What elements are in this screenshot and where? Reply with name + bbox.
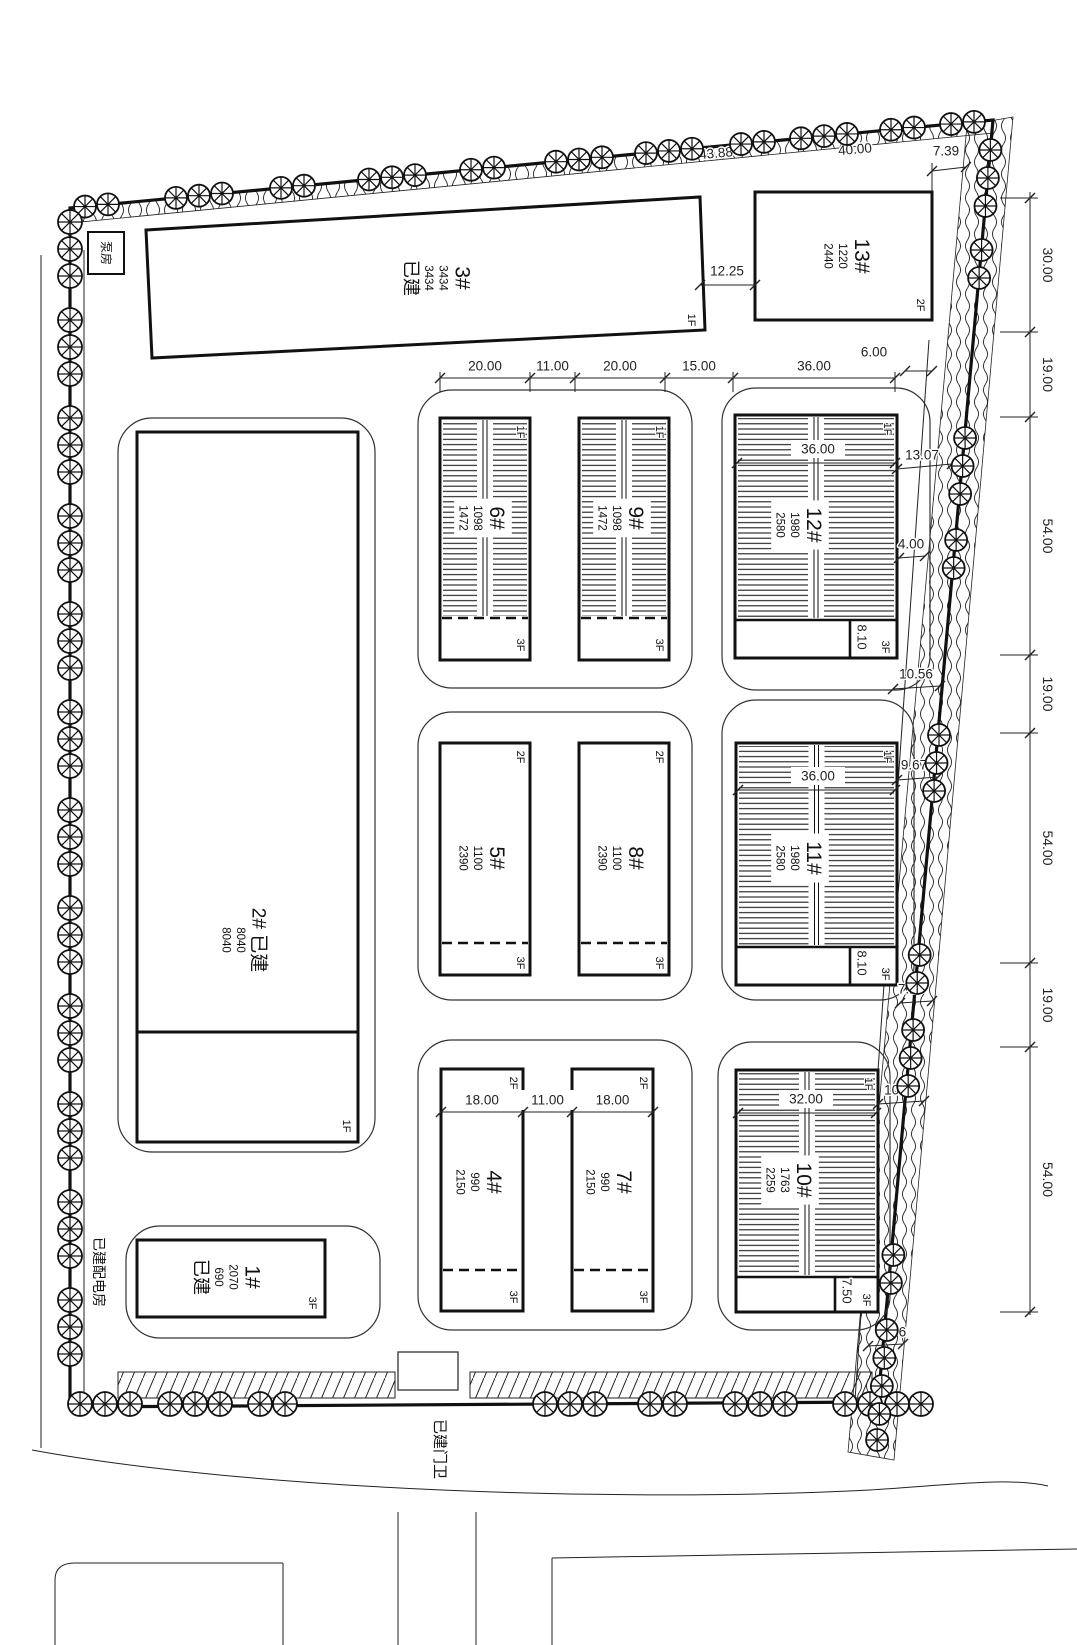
tree-icon — [58, 754, 82, 778]
floor-tag: 1F — [881, 751, 893, 764]
tree-icon — [790, 127, 812, 149]
building-11-text-0: 11# — [802, 841, 825, 875]
tree-icon — [902, 1019, 924, 1041]
building-6-text-2: 1472 — [456, 505, 468, 531]
dim-label: 12.25 — [710, 264, 744, 279]
building-2-text-2: 8040 — [220, 927, 232, 953]
building-9-label: 9#10981472 — [593, 499, 651, 538]
tree-icon — [293, 175, 315, 197]
building-1-text-2: 690 — [212, 1267, 224, 1286]
tree-icon — [68, 1392, 92, 1416]
floor-tag: 1F — [881, 423, 893, 436]
tree-icon — [923, 780, 945, 802]
tree-icon — [58, 1021, 82, 1045]
building-8-label: 8#11002390 — [593, 839, 651, 878]
path — [552, 1549, 1077, 1558]
floor-tag: 1F — [862, 1078, 874, 1091]
tree-icon — [900, 1047, 922, 1069]
tree-icon — [558, 1392, 582, 1416]
gate-house-label: 已建门卫 — [431, 1419, 448, 1479]
dim-label: 7.39 — [933, 144, 959, 159]
building-7-label: 7#9902150 — [581, 1163, 639, 1202]
tree-icon — [882, 1244, 904, 1266]
tree-icon — [58, 798, 82, 822]
gate-house-box — [398, 1352, 458, 1390]
tree-icon — [58, 460, 82, 484]
tree-icon — [58, 852, 82, 876]
floor-tag: 3F — [860, 1294, 872, 1307]
tree-icon — [58, 896, 82, 920]
dim-label: 43.88 — [699, 144, 734, 162]
tree-icon — [58, 362, 82, 386]
tree-icon — [583, 1392, 607, 1416]
dim-label: 11.00 — [536, 359, 569, 374]
floor-tag: 1F — [685, 314, 697, 327]
tree-icon — [880, 1272, 902, 1294]
tree-icon — [58, 994, 82, 1018]
tree-icon — [58, 727, 82, 751]
tree-icon — [836, 123, 858, 145]
building-1-text-3: 已建 — [191, 1259, 211, 1295]
inner-dim-label: 36.00 — [801, 442, 835, 457]
dim-label: 54.00 — [1040, 830, 1056, 865]
tree-icon — [58, 1342, 82, 1366]
path — [32, 1450, 1048, 1495]
tree-icon — [979, 139, 1001, 161]
dim-label: 30.00 — [1040, 247, 1056, 282]
tree-icon — [871, 1375, 893, 1397]
dim-label: 19.00 — [1040, 357, 1056, 392]
building-3-label: 3#34343434已建 — [399, 259, 478, 298]
tree-icon — [897, 1075, 919, 1097]
building-4-text-1: 990 — [468, 1172, 480, 1191]
dim-label: 18.00 — [596, 1093, 630, 1108]
tree-icon — [165, 187, 187, 209]
strip-dim-label: 8.10 — [854, 950, 869, 975]
tree-icon — [813, 125, 835, 147]
tree-icon — [591, 146, 613, 168]
tree-icon — [868, 1403, 890, 1425]
floor-tag: 3F — [637, 1291, 649, 1304]
tree-icon — [58, 1092, 82, 1116]
building-13-text-2: 2440 — [821, 243, 833, 269]
site-plan-drawing: 36.008.1036.008.1032.007.503#34343434已建1… — [0, 0, 1077, 1645]
building-13-text-0: 13# — [850, 238, 873, 273]
building-8-text-0: 8# — [624, 846, 647, 870]
tree-icon — [58, 264, 82, 288]
floor-tag: 3F — [879, 641, 891, 654]
building-8-text-2: 2390 — [595, 845, 607, 871]
tree-icon — [58, 210, 82, 234]
building-6 — [440, 418, 530, 660]
parking-strips — [118, 1352, 872, 1398]
tree-icon — [58, 406, 82, 430]
tree-icon — [273, 1392, 297, 1416]
tree-icon — [963, 111, 985, 133]
building-4-text-0: 4# — [482, 1170, 505, 1194]
tree-icon — [58, 1119, 82, 1143]
tree-icon — [158, 1392, 182, 1416]
tree-icon — [58, 433, 82, 457]
tree-icon — [968, 267, 990, 289]
tree-icon — [183, 1392, 207, 1416]
dim-label: 4.00 — [898, 537, 924, 552]
building-12-label: 12#19802580 — [771, 500, 829, 549]
building-5-text-2: 2390 — [456, 845, 468, 871]
dim-label: 18.00 — [465, 1093, 499, 1108]
power-room-label: 已建配电房 — [91, 1237, 107, 1307]
building-6-text-0: 6# — [485, 506, 508, 530]
building-12-text-1: 1980 — [788, 512, 800, 538]
building-7-text-0: 7# — [612, 1170, 635, 1194]
tree-icon — [58, 335, 82, 359]
floor-tag: 1F — [340, 1120, 352, 1133]
tree-icon — [926, 752, 948, 774]
tree-icon — [358, 169, 380, 191]
building-9 — [579, 418, 669, 660]
tree-icon — [58, 1146, 82, 1170]
tree-icon — [873, 1347, 895, 1369]
tree-icon — [58, 700, 82, 724]
building-3-text-1: 3434 — [437, 265, 449, 291]
tree-icon — [906, 972, 928, 994]
building-13-text-1: 1220 — [836, 243, 848, 269]
floor-tag: 1F — [653, 426, 665, 439]
tree-icon — [977, 167, 999, 189]
dim-label: 54.00 — [1040, 518, 1056, 553]
tree-icon — [730, 133, 752, 155]
floor-tag: 2F — [653, 751, 665, 764]
building-11-text-2: 2580 — [773, 845, 785, 871]
floor-tag: 3F — [306, 1297, 318, 1310]
dim-label: 13.07 — [905, 448, 939, 463]
tree-icon — [58, 923, 82, 947]
tree-icon — [723, 1392, 747, 1416]
dim-label: 9.67 — [901, 758, 927, 773]
tree-icon — [58, 1315, 82, 1339]
tree-icon — [658, 140, 680, 162]
tree-icon — [58, 602, 82, 626]
tree-icon — [952, 455, 974, 477]
tree-icon — [58, 531, 82, 555]
dim-label: 15.00 — [682, 359, 716, 374]
building-9-text-1: 1098 — [610, 505, 622, 531]
building-10-text-0: 10# — [792, 1162, 815, 1197]
building-2-text-1: 8040 — [234, 927, 246, 953]
tree-icon — [188, 185, 210, 207]
building-1-text-0: 1# — [241, 1265, 264, 1289]
tree-icon — [483, 157, 505, 179]
tree-icon — [58, 1190, 82, 1214]
tree-icon — [748, 1392, 772, 1416]
floor-tag: 2F — [637, 1077, 649, 1090]
tree-icon — [58, 1244, 82, 1268]
rect — [137, 432, 358, 1142]
dim-label: 54.00 — [1040, 1162, 1056, 1197]
tree-icon — [971, 239, 993, 261]
tree-icon — [681, 138, 703, 160]
site-plan-canvas: 36.008.1036.008.1032.007.503#34343434已建1… — [0, 0, 1077, 1645]
tree-icon — [533, 1392, 557, 1416]
building-3-text-3: 已建 — [401, 260, 421, 296]
tree-icon — [903, 117, 925, 139]
building-13-label: 13#12202440 — [819, 231, 877, 280]
tree-icon — [876, 1319, 898, 1341]
dim-label: 19.00 — [1040, 987, 1056, 1022]
dim-label: 10.56 — [899, 667, 933, 682]
tree-icon — [58, 308, 82, 332]
tree-icon — [833, 1392, 857, 1416]
tree-icon — [635, 142, 657, 164]
tree-icon — [638, 1392, 662, 1416]
tree-icon — [58, 504, 82, 528]
building-3-text-2: 3434 — [422, 265, 434, 291]
tree-icon — [381, 166, 403, 188]
building-2-text-0: 2# 已建 — [248, 908, 270, 972]
floor-tag: 3F — [879, 968, 891, 981]
dim-label: 6.00 — [861, 345, 887, 360]
building-8-text-1: 1100 — [610, 846, 622, 871]
dim-line — [932, 167, 966, 171]
building-2-label: 2# 已建80408040 — [217, 900, 273, 981]
tree-icon — [211, 183, 233, 205]
tree-icon — [866, 1429, 888, 1451]
building-7-text-1: 990 — [598, 1172, 610, 1191]
dim-label: 36.00 — [797, 359, 831, 374]
tree-icon — [940, 113, 962, 135]
tree-icon — [949, 483, 971, 505]
building-5-text-0: 5# — [485, 846, 508, 870]
path — [55, 1563, 283, 1580]
floor-tag: 2F — [507, 1077, 519, 1090]
tree-icon — [58, 1048, 82, 1072]
strip-dim-label: 8.10 — [854, 624, 869, 649]
tree-icon — [663, 1392, 687, 1416]
floor-tag: 1F — [514, 426, 526, 439]
tree-icon — [58, 1217, 82, 1241]
dim-label: 20.00 — [603, 359, 637, 374]
floor-tag: 3F — [507, 1291, 519, 1304]
tree-icon — [58, 825, 82, 849]
floor-tag: 2F — [914, 299, 926, 312]
building-2 — [137, 432, 358, 1142]
tree-icon — [208, 1392, 232, 1416]
tree-icon — [58, 656, 82, 680]
building-1-label: 1#2070690已建 — [189, 1258, 268, 1297]
inner-dim-label: 36.00 — [801, 769, 835, 784]
pump-house-label: 泵房 — [99, 241, 114, 265]
building-12-text-0: 12# — [802, 507, 825, 542]
building-5-text-1: 1100 — [471, 846, 483, 871]
floor-tag: 3F — [514, 639, 526, 652]
building-4-text-2: 2150 — [453, 1169, 465, 1195]
building-10-text-2: 2259 — [763, 1167, 775, 1193]
tree-icon — [880, 119, 902, 141]
tree-icon — [58, 237, 82, 261]
tree-icon — [58, 1288, 82, 1312]
tree-icon — [248, 1392, 272, 1416]
tree-icon — [58, 629, 82, 653]
tree-icon — [460, 159, 482, 181]
tree-icon — [773, 1392, 797, 1416]
building-12-text-2: 2580 — [773, 512, 785, 538]
floor-tag: 3F — [653, 957, 665, 970]
tree-icon — [93, 1392, 117, 1416]
tree-icon — [753, 131, 775, 153]
inner-dim-label: 32.00 — [789, 1092, 823, 1107]
tree-icon — [928, 724, 950, 746]
tree-icon — [954, 427, 976, 449]
tree-icon — [270, 177, 292, 199]
building-10-text-1: 1763 — [778, 1167, 790, 1193]
dim-label: 11.00 — [531, 1093, 564, 1108]
building-7-text-2: 2150 — [583, 1169, 595, 1195]
building-6-label: 6#10981472 — [454, 499, 512, 538]
tree-icon — [118, 1392, 142, 1416]
building-1-text-1: 2070 — [227, 1264, 239, 1290]
floor-tag: 2F — [514, 751, 526, 764]
building-4-label: 4#9902150 — [451, 1163, 509, 1202]
building-3-text-0: 3# — [451, 266, 474, 290]
tree-icon — [909, 944, 931, 966]
tree-icon — [909, 1392, 933, 1416]
tree-icon — [58, 558, 82, 582]
tree-icon — [974, 195, 996, 217]
building-11-text-1: 1980 — [788, 845, 800, 871]
floor-tag: 3F — [653, 639, 665, 652]
building-6-text-1: 1098 — [471, 505, 483, 531]
tree-icon — [404, 164, 426, 186]
tree-icon — [568, 148, 590, 170]
building-9-text-2: 1472 — [595, 505, 607, 531]
building-5-label: 5#11002390 — [454, 839, 512, 878]
tree-icon — [945, 529, 967, 551]
strip-dim-label: 7.50 — [839, 1278, 854, 1303]
floor-tag: 3F — [514, 957, 526, 970]
building-9-text-0: 9# — [624, 506, 647, 530]
dim-label: 19.00 — [1040, 676, 1056, 711]
tree-icon — [97, 193, 119, 215]
tree-icon — [545, 151, 567, 173]
building-11-label: 11#19802580 — [771, 833, 829, 882]
building-10-label: 10#17632259 — [761, 1155, 819, 1204]
dim-line — [899, 556, 925, 558]
tree-icon — [58, 950, 82, 974]
dim-label: 20.00 — [468, 359, 502, 374]
tree-icon — [943, 557, 965, 579]
